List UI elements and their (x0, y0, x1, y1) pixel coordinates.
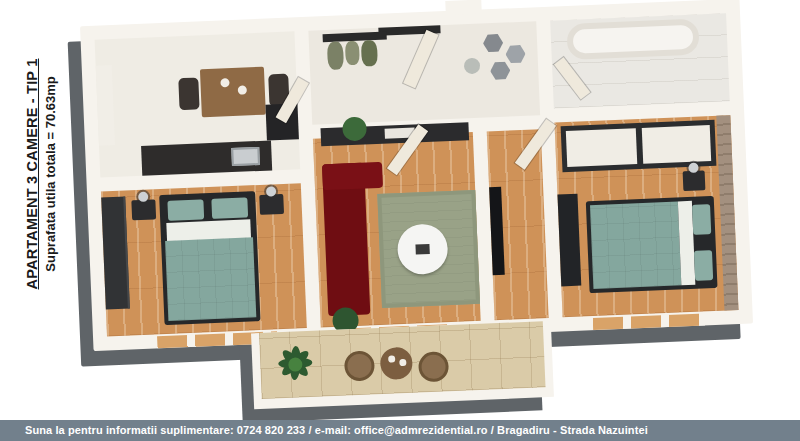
top-wall-pillar (445, 0, 482, 15)
wardrobe-door (642, 125, 711, 164)
dresser (557, 194, 581, 287)
pillow (211, 197, 248, 218)
pillow (692, 204, 711, 235)
balcony (251, 321, 554, 409)
nightstand (259, 194, 284, 215)
bed-duvet (590, 201, 681, 289)
nightstand (131, 199, 156, 220)
kitchen-cabinet (96, 65, 115, 146)
wardrobe-door (566, 128, 637, 167)
pillow (694, 250, 713, 281)
usable-area-subtitle: Suprafata utila totala = 70.63mp (43, 49, 58, 299)
nightstand (683, 170, 706, 191)
sofa-arm (322, 162, 383, 190)
wardrobe (101, 197, 130, 310)
plan-title-block: APARTAMENT 3 CAMERE - TIP 1 Suprafata ut… (24, 49, 68, 299)
apartment-listing-image: APARTAMENT 3 CAMERE - TIP 1 Suprafata ut… (0, 0, 800, 441)
dining-chair (178, 77, 199, 110)
contact-footer-bar: Suna la pentru informatii suplimentare: … (0, 420, 800, 441)
hanging-jacket (361, 40, 378, 67)
bathtub (566, 18, 699, 59)
hanging-jacket (327, 41, 344, 70)
hanging-jacket (345, 41, 360, 66)
dining-table (200, 67, 266, 118)
contact-info-text: Suna la pentru informatii suplimentare: … (25, 424, 648, 436)
apartment-title: APARTAMENT 3 CAMERE - TIP 1 (24, 49, 40, 299)
bedroom-2-window (593, 313, 705, 330)
kitchen-sink (231, 147, 260, 166)
building-outline (80, 0, 753, 351)
floor-plan (80, 0, 772, 422)
book (415, 244, 429, 255)
pillow (167, 199, 204, 220)
bed-duvet (165, 237, 256, 321)
